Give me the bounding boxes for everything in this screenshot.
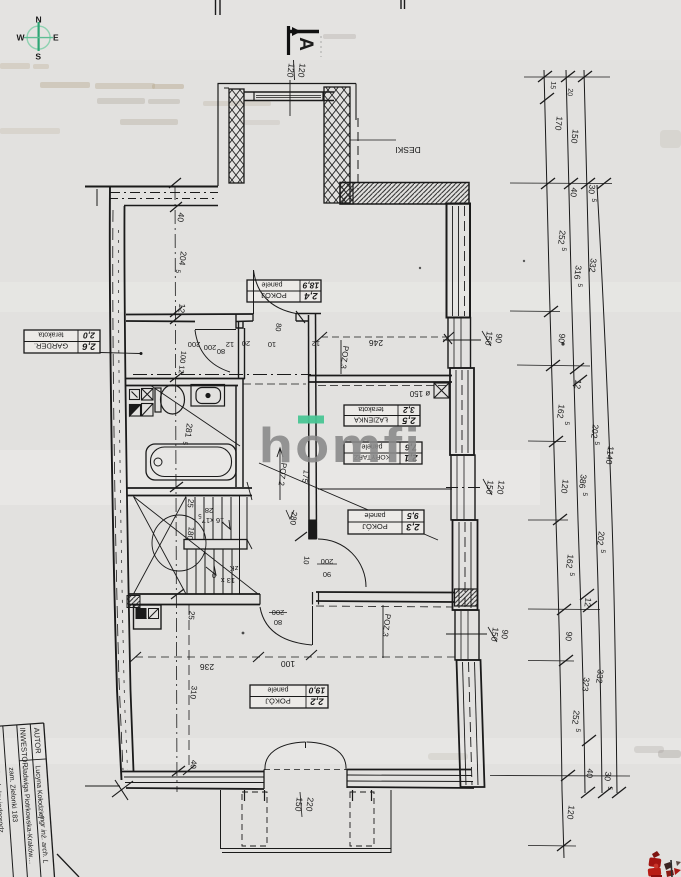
svg-text:90: 90 — [499, 629, 510, 640]
svg-text:POKÓJ: POKÓJ — [362, 522, 388, 531]
svg-text:90: 90 — [556, 333, 567, 344]
svg-text:10: 10 — [302, 556, 312, 565]
svg-text:20: 20 — [242, 339, 250, 348]
svg-text:90: 90 — [563, 631, 574, 642]
svg-text:120: 120 — [285, 63, 297, 79]
svg-text:80: 80 — [274, 323, 284, 332]
svg-text:S: S — [35, 52, 41, 62]
svg-text:80: 80 — [274, 618, 282, 627]
svg-text:30: 30 — [586, 184, 597, 195]
svg-text:10: 10 — [268, 340, 276, 349]
svg-text:18,9: 18,9 — [302, 281, 319, 291]
svg-text:13 x: 13 x — [221, 576, 235, 585]
svg-text:12: 12 — [226, 340, 234, 349]
svg-text:220: 220 — [304, 797, 316, 813]
svg-text:homfi: homfi — [259, 418, 422, 473]
svg-text:200: 200 — [321, 557, 334, 566]
svg-text:236: 236 — [200, 662, 214, 672]
svg-text:12: 12 — [572, 379, 583, 390]
svg-text:40: 40 — [188, 759, 198, 769]
svg-text:162: 162 — [564, 554, 576, 570]
svg-text:80: 80 — [217, 347, 225, 356]
svg-text:332: 332 — [587, 258, 599, 274]
svg-text:120: 120 — [565, 805, 577, 821]
svg-text:150: 150 — [484, 480, 496, 496]
svg-text:162: 162 — [555, 404, 567, 420]
svg-text:252: 252 — [556, 230, 568, 246]
svg-text:323: 323 — [580, 677, 592, 693]
svg-text:16 x17: 16 x17 — [202, 516, 225, 525]
svg-text:40: 40 — [568, 187, 579, 198]
svg-text:20: 20 — [566, 88, 574, 97]
svg-text:100: 100 — [281, 659, 295, 669]
svg-text:3,2: 3,2 — [403, 405, 415, 415]
svg-text:90: 90 — [493, 333, 504, 344]
svg-text:15: 15 — [549, 81, 557, 90]
svg-text:170: 170 — [553, 116, 565, 132]
svg-text:316: 316 — [572, 265, 584, 281]
svg-text:2,0: 2,0 — [83, 331, 96, 341]
svg-text:150: 150 — [293, 797, 305, 813]
svg-text:202: 202 — [589, 424, 601, 440]
svg-text:2,4: 2,4 — [304, 290, 319, 301]
svg-text:25: 25 — [186, 610, 196, 620]
svg-text:90: 90 — [323, 570, 331, 579]
svg-text:ø 150: ø 150 — [409, 389, 430, 398]
svg-text:246: 246 — [369, 338, 383, 348]
svg-text:25: 25 — [185, 498, 195, 508]
svg-text:12: 12 — [176, 303, 187, 314]
svg-text:310: 310 — [188, 685, 199, 700]
svg-text:panele: panele — [261, 281, 282, 288]
svg-text:120: 120 — [559, 479, 571, 495]
svg-text:281: 281 — [183, 423, 195, 439]
svg-text:GARDER.: GARDER. — [34, 342, 68, 351]
svg-text:terakota: terakota — [38, 331, 63, 338]
svg-text:panele: panele — [267, 686, 288, 693]
svg-text:120: 120 — [495, 480, 507, 496]
svg-text:200: 200 — [204, 343, 217, 352]
svg-text:12: 12 — [582, 597, 593, 608]
svg-text:2,6: 2,6 — [82, 341, 97, 352]
svg-text:200: 200 — [188, 340, 201, 349]
svg-text:POKÓJ: POKÓJ — [265, 697, 291, 706]
svg-text:150: 150 — [483, 331, 495, 347]
svg-text:386: 386 — [577, 474, 589, 490]
svg-text:30: 30 — [602, 771, 613, 782]
svg-text:2,2: 2,2 — [310, 696, 325, 707]
svg-text:332: 332 — [594, 669, 606, 685]
svg-text:40: 40 — [584, 768, 595, 779]
svg-text:252: 252 — [570, 710, 582, 726]
svg-text:202: 202 — [595, 531, 607, 547]
svg-text:19,0: 19,0 — [308, 686, 325, 696]
svg-text:panele: panele — [364, 511, 385, 518]
svg-text:180: 180 — [185, 526, 196, 541]
svg-text:204: 204 — [177, 251, 189, 267]
svg-text:2,3: 2,3 — [406, 521, 421, 532]
svg-text:150: 150 — [489, 627, 501, 643]
svg-text:120: 120 — [296, 63, 308, 79]
svg-text:terakota: terakota — [358, 405, 383, 412]
svg-text:E: E — [53, 33, 59, 43]
svg-text:AUTOR: AUTOR — [32, 727, 43, 754]
svg-text:zK: zK — [230, 564, 239, 573]
svg-text:A: A — [295, 37, 316, 51]
svg-text:DESKI: DESKI — [395, 145, 421, 155]
svg-text:28: 28 — [205, 506, 213, 515]
svg-text:150: 150 — [569, 129, 581, 145]
svg-text:W: W — [16, 33, 25, 43]
svg-text:N: N — [36, 15, 42, 25]
svg-text:9,5: 9,5 — [407, 511, 419, 521]
svg-text:POKÓJ: POKÓJ — [261, 291, 287, 300]
svg-text:40: 40 — [175, 212, 186, 223]
